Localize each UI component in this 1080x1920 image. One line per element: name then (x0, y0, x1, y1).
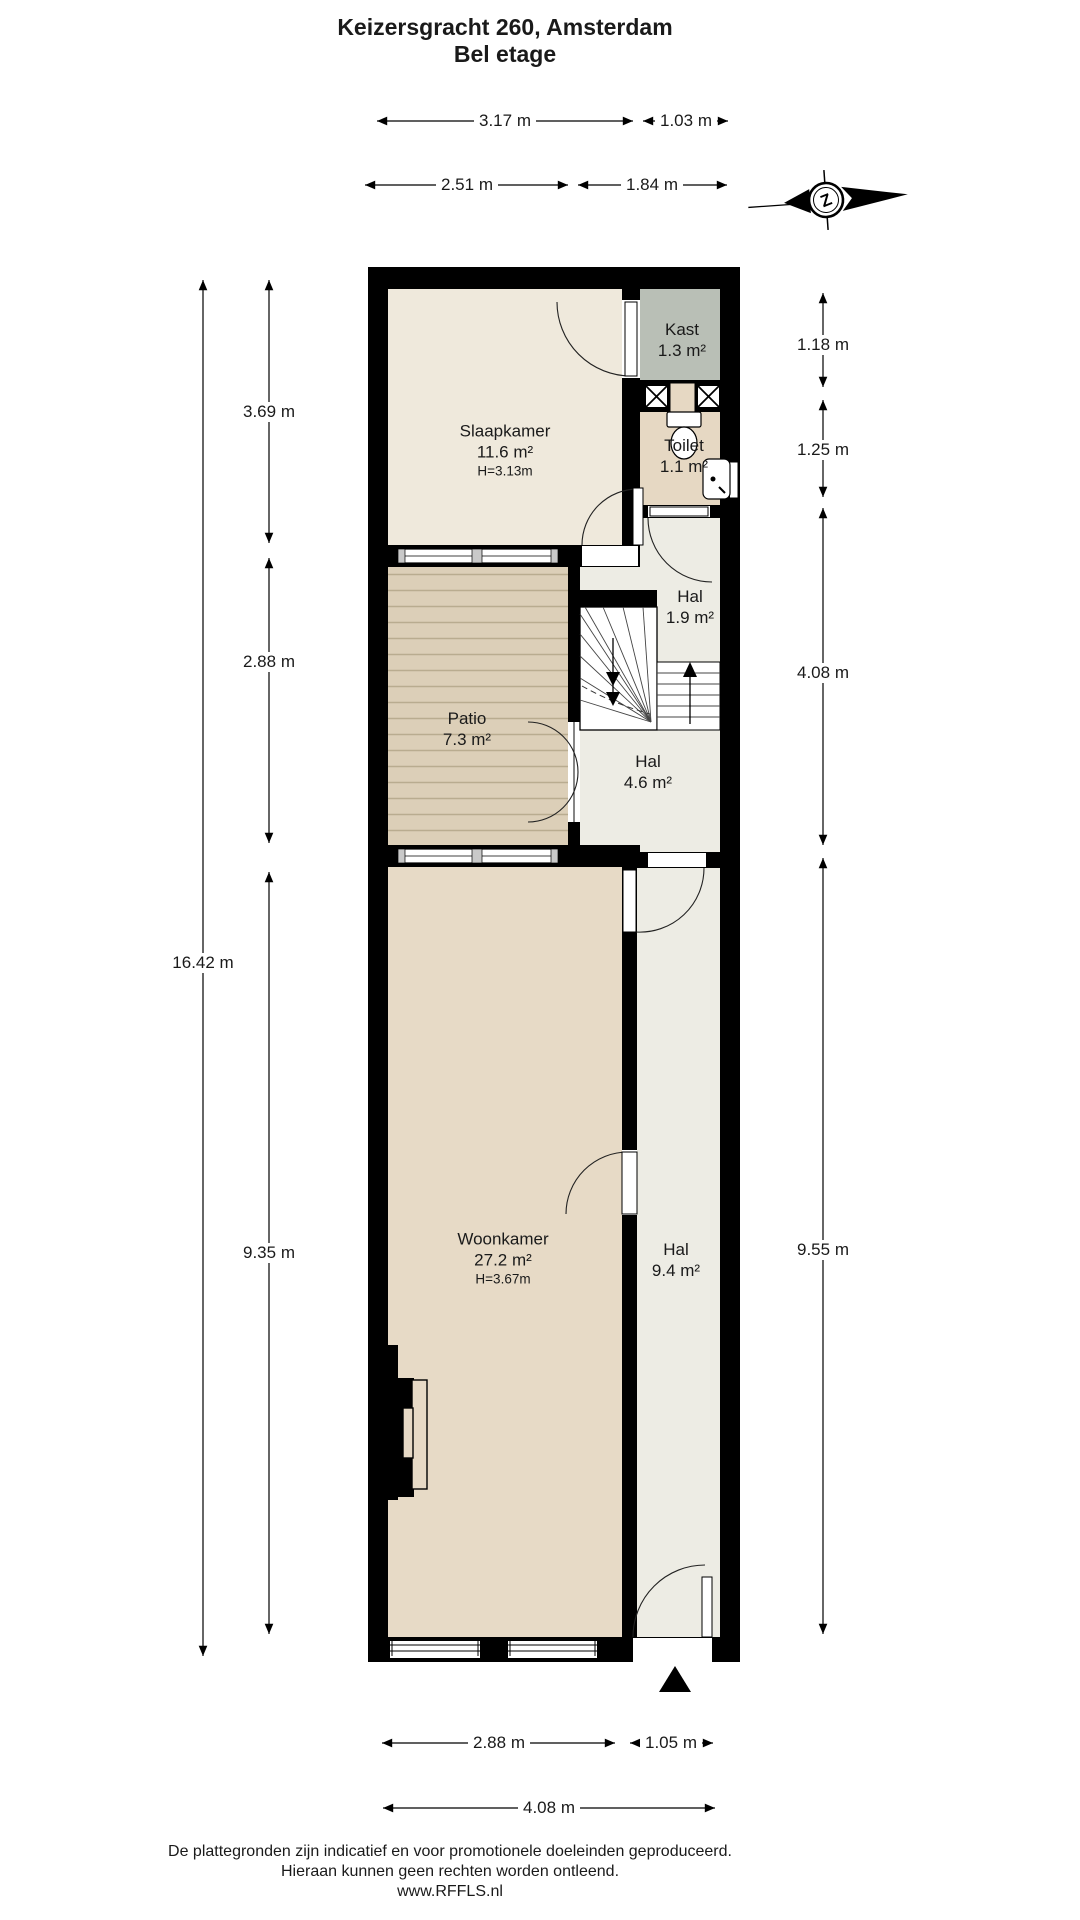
label-hal-tussen: Hal 4.6 m² (624, 751, 672, 793)
label-hal-boven: Hal 1.9 m² (666, 586, 714, 628)
disclaimer: De plattegronden zijn indicatief en voor… (168, 1842, 732, 1902)
label-woonkamer: Woonkamer 27.2 m² H=3.67m (457, 1229, 548, 1288)
compass-icon: Z (746, 164, 910, 235)
disclaimer-line2: Hieraan kunnen geen rechten worden ontle… (168, 1862, 732, 1882)
label-slaapkamer: Slaapkamer 11.6 m² H=3.13m (460, 421, 551, 480)
room-floors (388, 289, 720, 1637)
dim-left-2: 2.88 m (238, 652, 300, 672)
floorplan-drawing: Z (0, 0, 1080, 1920)
dim-right-1: 1.18 m (792, 335, 854, 355)
room-patio (388, 567, 568, 845)
label-kast: Kast 1.3 m² (658, 319, 706, 361)
dim-left-4: 9.35 m (238, 1243, 300, 1263)
dim-bottom-3: 4.08 m (518, 1798, 580, 1818)
disclaimer-line1: De plattegronden zijn indicatief en voor… (168, 1842, 732, 1862)
website-url: www.RFFLS.nl (168, 1882, 732, 1902)
dim-bottom-1: 2.88 m (468, 1733, 530, 1753)
dim-right-3: 4.08 m (792, 663, 854, 683)
title-address: Keizersgracht 260, Amsterdam (337, 14, 672, 41)
page-title: Keizersgracht 260, Amsterdam Bel etage (337, 14, 672, 68)
dim-right-2: 1.25 m (792, 440, 854, 460)
dim-left-1: 3.69 m (238, 402, 300, 422)
floorplan-page: Z Keizersgracht 260, Amsterdam Bel etage… (0, 0, 1080, 1920)
dim-top-2: 1.03 m (655, 111, 717, 131)
dim-top-1: 3.17 m (474, 111, 536, 131)
dim-bottom-2: 1.05 m (640, 1733, 702, 1753)
label-toilet: Toilet 1.1 m² (660, 435, 708, 477)
dim-left-3: 16.42 m (167, 953, 238, 973)
room-slaapkamer (388, 289, 622, 545)
dim-top-4: 1.84 m (621, 175, 683, 195)
dim-right-4: 9.55 m (792, 1240, 854, 1260)
label-patio: Patio 7.3 m² (443, 708, 491, 750)
label-hal-beneden: Hal 9.4 m² (652, 1239, 700, 1281)
entrance-arrow (659, 1666, 691, 1692)
title-floor: Bel etage (337, 41, 672, 68)
dim-top-3: 2.51 m (436, 175, 498, 195)
